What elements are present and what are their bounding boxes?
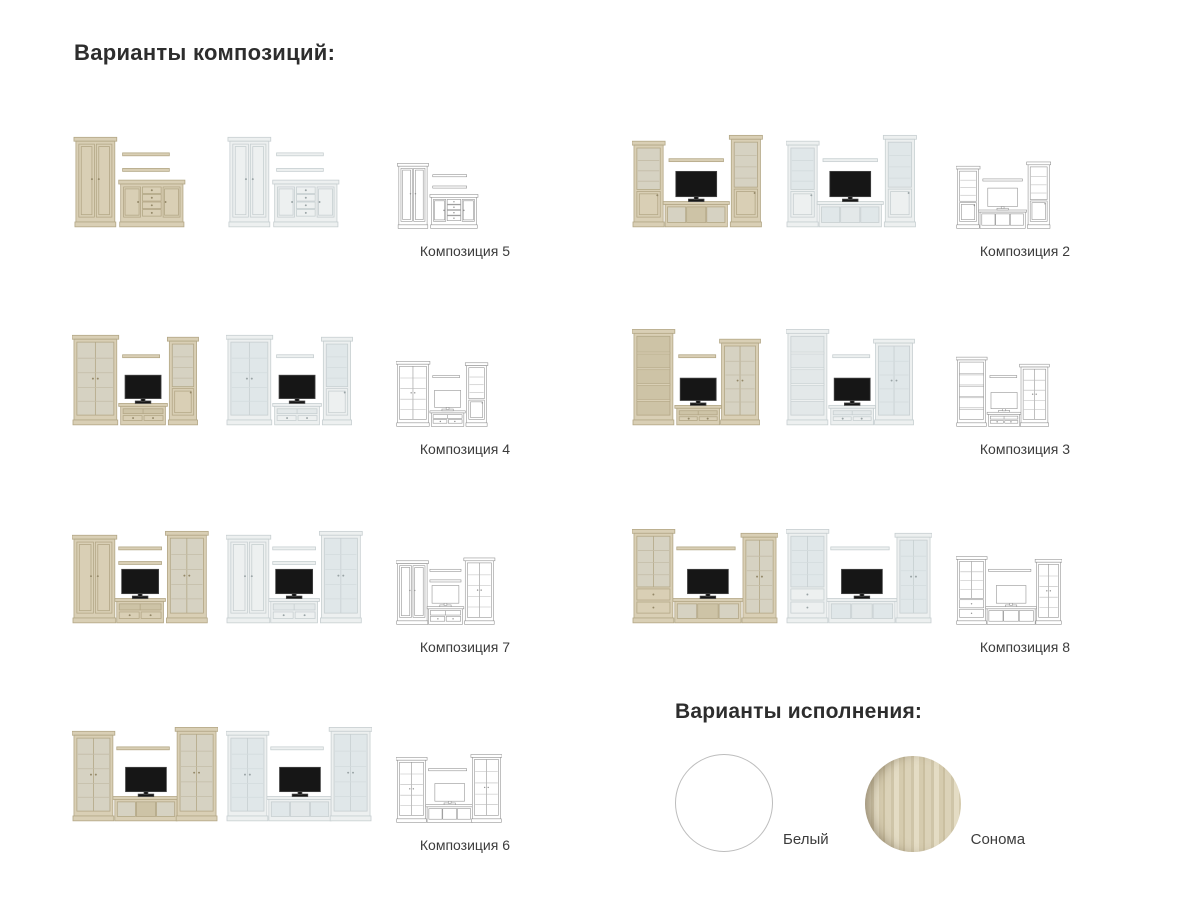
- furniture-render-white: [226, 508, 372, 627]
- composition-label: Композиция 2: [632, 243, 1070, 259]
- composition-group: Композиция 6: [72, 706, 632, 904]
- page-title: Варианты композиций:: [74, 40, 335, 66]
- composition-renders: [72, 706, 632, 825]
- furniture-drawing-wireframe: [396, 739, 502, 825]
- composition-label: Композиция 4: [72, 441, 510, 457]
- furniture-drawing-wireframe: [396, 343, 502, 429]
- composition-label: Композиция 7: [72, 639, 510, 655]
- composition-group: Композиция 5: [72, 112, 632, 310]
- composition-label: Композиция 3: [632, 441, 1070, 457]
- furniture-render-white: [226, 112, 372, 231]
- composition-renders: [72, 508, 632, 627]
- finishes-section: Варианты исполнения: Белый Сонома: [675, 700, 1025, 852]
- composition-label: Композиция 6: [72, 837, 510, 853]
- furniture-render-sonoma: [632, 310, 778, 429]
- finish-label: Белый: [783, 831, 829, 852]
- furniture-render-sonoma: [72, 508, 218, 627]
- furniture-render-sonoma: [72, 706, 218, 825]
- furniture-render-sonoma: [72, 112, 218, 231]
- finish-swatch-sonoma: [865, 756, 961, 852]
- furniture-drawing-wireframe: [956, 343, 1062, 429]
- finish-option: Сонома: [865, 754, 1025, 852]
- furniture-render-sonoma: [632, 508, 778, 627]
- composition-renders: [632, 310, 1102, 429]
- composition-group: Композиция 3: [632, 310, 1102, 508]
- finish-label: Сонома: [971, 831, 1025, 852]
- furniture-drawing-wireframe: [396, 541, 502, 627]
- composition-renders: [632, 508, 1102, 627]
- composition-renders: [632, 112, 1102, 231]
- furniture-render-white: [226, 310, 372, 429]
- furniture-render-white: [786, 112, 932, 231]
- composition-group: Композиция 8: [632, 508, 1102, 706]
- composition-group: Композиция 4: [72, 310, 632, 508]
- furniture-render-sonoma: [72, 310, 218, 429]
- composition-label: Композиция 5: [72, 243, 510, 259]
- finish-option: Белый: [675, 754, 829, 852]
- composition-label: Композиция 8: [632, 639, 1070, 655]
- furniture-render-white: [226, 706, 372, 825]
- composition-group: Композиция 2: [632, 112, 1102, 310]
- finishes-title: Варианты исполнения:: [675, 700, 1025, 724]
- furniture-drawing-wireframe: [956, 145, 1062, 231]
- furniture-drawing-wireframe: [396, 145, 502, 231]
- furniture-render-white: [786, 310, 932, 429]
- composition-renders: [72, 112, 632, 231]
- furniture-render-sonoma: [632, 112, 778, 231]
- finish-row: Белый Сонома: [675, 754, 1025, 852]
- furniture-drawing-wireframe: [956, 541, 1062, 627]
- finish-swatch-white: [675, 754, 773, 852]
- furniture-render-white: [786, 508, 932, 627]
- composition-group: Композиция 7: [72, 508, 632, 706]
- composition-renders: [72, 310, 632, 429]
